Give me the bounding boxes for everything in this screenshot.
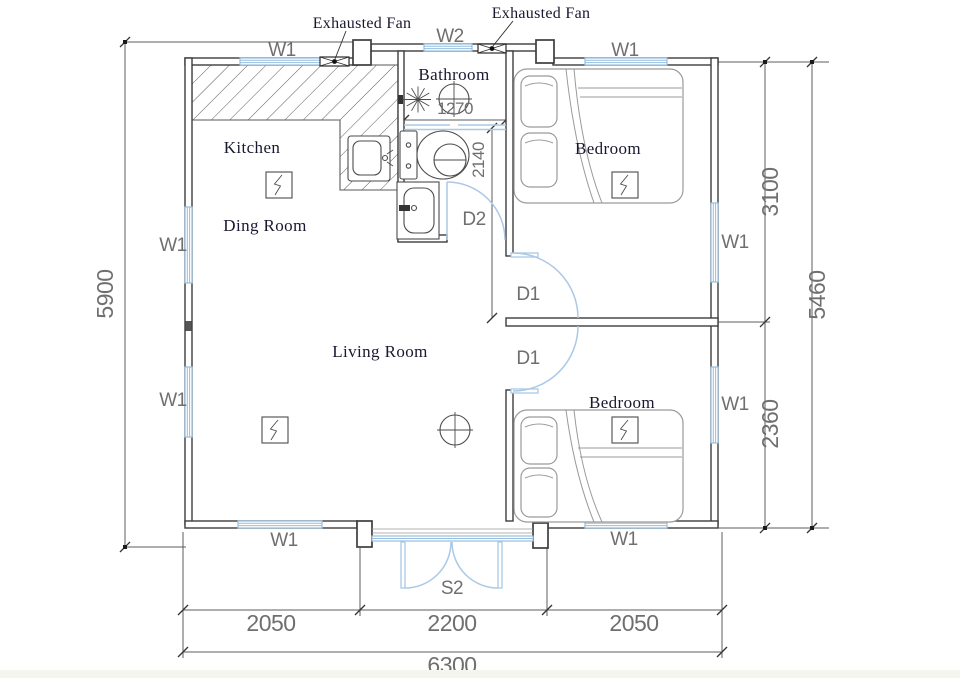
wall-divider-upper — [506, 51, 513, 256]
exhaust-fan-left-symbol — [320, 57, 349, 66]
post-top-2 — [536, 40, 554, 63]
wall-right — [711, 58, 718, 525]
tag-s2: S2 — [441, 578, 463, 599]
wall-divider-lower — [506, 390, 513, 521]
tag-w1-right-lower: W1 — [721, 394, 749, 415]
room-label-living: Living Room — [332, 342, 428, 361]
floor-plan-canvas: Exhausted Fan Exhausted Fan Kitchen Ding… — [0, 0, 960, 678]
bathroom-sink — [397, 182, 439, 239]
post-bottom-2 — [533, 523, 548, 548]
electrical-switch-living — [262, 417, 288, 443]
dim-bottom-seg-3: 2050 — [609, 610, 658, 636]
exhaust-fan-right-symbol — [478, 44, 506, 53]
tag-w1-bottom-right: W1 — [610, 529, 638, 550]
dimension-lines — [125, 42, 829, 658]
toilet — [400, 131, 469, 179]
electrical-switch-bedroom-top — [612, 172, 638, 198]
tag-d1-bottom: D1 — [516, 348, 539, 369]
room-label-bathroom: Bathroom — [418, 65, 489, 84]
bed-top-bedroom — [514, 69, 683, 203]
ceiling-light-living — [437, 412, 473, 448]
tag-w1-right-upper: W1 — [721, 232, 749, 253]
room-label-kitchen: Kitchen — [224, 138, 281, 157]
dim-bath-height: 2140 — [469, 142, 488, 178]
kitchen-sink — [348, 136, 393, 181]
electrical-switch-kitchen — [266, 172, 292, 198]
dim-bottom-seg-2: 2200 — [427, 610, 476, 636]
tag-d1-top: D1 — [516, 284, 539, 305]
wall-joint-left — [186, 321, 192, 331]
bed-bottom-bedroom — [514, 410, 683, 522]
room-label-dining: Ding Room — [223, 216, 306, 235]
wall-left — [185, 58, 192, 525]
dim-right-lower: 2360 — [757, 399, 783, 448]
page-edge — [0, 670, 960, 678]
dim-bath-width: 1270 — [437, 99, 473, 118]
exhaust-fan-right-label: Exhausted Fan — [492, 5, 591, 22]
tag-w1-bottom-left: W1 — [270, 530, 298, 551]
room-label-bedroom-bottom: Bedroom — [589, 393, 655, 412]
dim-right-upper: 3100 — [757, 167, 783, 216]
room-label-bedroom-top: Bedroom — [575, 139, 641, 158]
electrical-switch-bedroom-bottom — [612, 417, 638, 443]
leader-exhaust-fan-right — [493, 21, 513, 46]
tag-w1-left-upper: W1 — [159, 235, 187, 256]
tag-w1-left-lower: W1 — [159, 390, 187, 411]
bathroom-partition — [404, 125, 506, 130]
dim-right-total: 5460 — [804, 270, 830, 319]
tag-w2: W2 — [436, 26, 464, 47]
window-w1-right-upper — [711, 203, 718, 282]
window-w1-bottom-left — [238, 521, 322, 528]
dim-bottom-seg-1: 2050 — [246, 610, 295, 636]
exhaust-fan-left-label: Exhausted Fan — [313, 15, 412, 32]
tag-w1-top-left: W1 — [268, 40, 296, 61]
wall-bedroom-divider — [506, 318, 718, 326]
post-bottom-1 — [357, 521, 372, 547]
pillow — [521, 76, 557, 127]
post-top-1 — [353, 40, 371, 65]
tag-d2: D2 — [462, 209, 485, 230]
window-w1-right-lower — [711, 367, 718, 443]
dim-left-total: 5900 — [92, 269, 118, 318]
floor-plan-page: Exhausted Fan Exhausted Fan Kitchen Ding… — [0, 0, 960, 678]
tag-w1-top-right: W1 — [611, 40, 639, 61]
leader-exhaust-fan-left — [335, 31, 346, 59]
pillow — [521, 133, 557, 187]
